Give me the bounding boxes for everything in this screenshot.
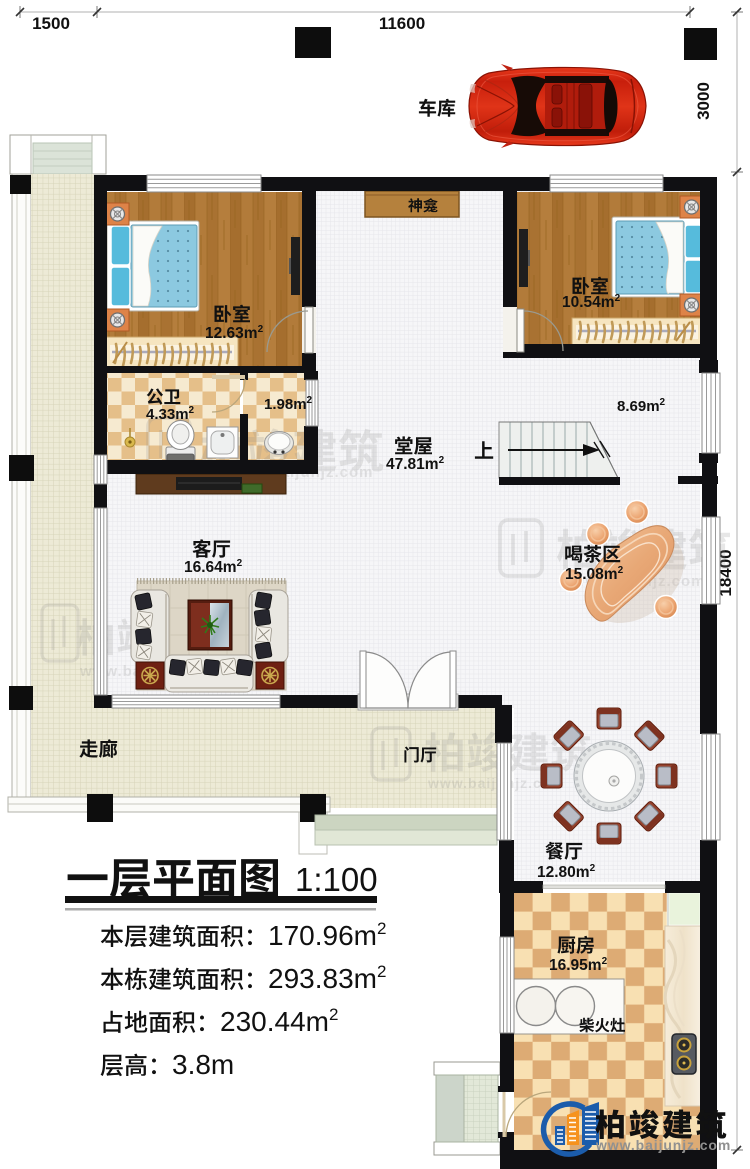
svg-text:10.54m2: 10.54m2 bbox=[562, 293, 621, 311]
svg-text:12.63m2: 12.63m2 bbox=[205, 324, 264, 342]
svg-text:4.33m2: 4.33m2 bbox=[146, 405, 195, 423]
svg-text:1.98m2: 1.98m2 bbox=[264, 395, 313, 413]
svg-text:47.81m2: 47.81m2 bbox=[386, 455, 445, 473]
svg-text:16.95m2: 16.95m2 bbox=[549, 956, 608, 974]
svg-text:230.44m2: 230.44m2 bbox=[220, 1005, 338, 1037]
svg-text:15.08m2: 15.08m2 bbox=[565, 565, 624, 583]
svg-text:11600: 11600 bbox=[379, 14, 425, 33]
svg-text:170.96m2: 170.96m2 bbox=[268, 919, 386, 951]
svg-text:293.83m2: 293.83m2 bbox=[268, 962, 386, 994]
svg-text:8.69m2: 8.69m2 bbox=[617, 397, 666, 415]
svg-text:12.80m2: 12.80m2 bbox=[537, 863, 596, 881]
svg-text:1:100: 1:100 bbox=[295, 861, 378, 898]
svg-text:3000: 3000 bbox=[694, 82, 713, 120]
svg-text:1500: 1500 bbox=[32, 14, 70, 33]
svg-text:16.64m2: 16.64m2 bbox=[184, 558, 243, 576]
svg-text:www.baijunjz.com: www.baijunjz.com bbox=[595, 1137, 731, 1153]
svg-text:3.8m: 3.8m bbox=[172, 1049, 234, 1080]
